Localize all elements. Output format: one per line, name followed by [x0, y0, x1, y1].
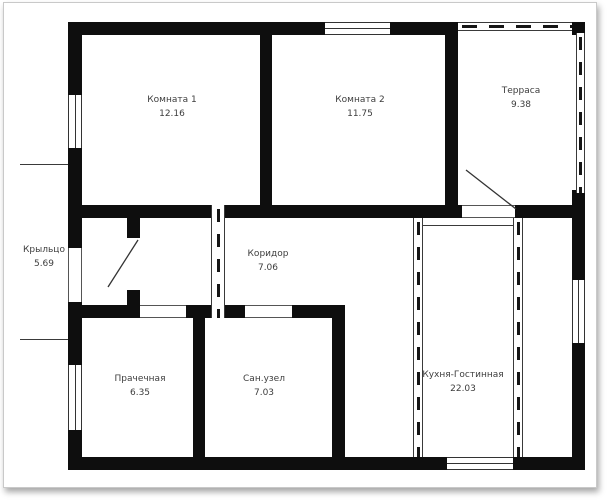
door-sanuzel — [245, 305, 292, 318]
room-label-san-uzel: Сан.узел 7.03 — [243, 372, 285, 400]
room-name: Сан.узел — [243, 372, 285, 386]
room-area: 9.38 — [502, 98, 540, 112]
door-terrace-opening — [462, 205, 515, 218]
room-area: 6.35 — [115, 386, 166, 400]
wall-lower-a — [82, 305, 140, 318]
window-kitchen-right — [572, 280, 585, 343]
wall-terrace-bottom-right — [515, 205, 572, 218]
porch-line-bottom — [20, 339, 68, 340]
room-name: Прачечная — [115, 372, 166, 386]
room-area: 7.06 — [248, 261, 289, 275]
room-label-koridor: Коридор 7.06 — [248, 247, 289, 275]
frame-wall-kitchen-2 — [513, 218, 523, 457]
room-name: Кухня-Гостинная — [422, 368, 503, 382]
window-laundry-left — [68, 365, 82, 430]
room-label-komnata-2: Комната 2 11.75 — [335, 93, 384, 121]
room-name: Терраса — [502, 84, 540, 98]
wall-hall-closet-top — [127, 218, 140, 238]
photo-frame — [3, 2, 597, 488]
wall-room2-terrace — [445, 22, 458, 218]
room-area: 7.03 — [243, 386, 285, 400]
room-label-prachechnaya: Прачечная 6.35 — [115, 372, 166, 400]
room-name: Комната 2 — [335, 93, 384, 107]
room-name: Коридор — [248, 247, 289, 261]
floor-plan-canvas: Комната 1 12.16 Комната 2 11.75 Терраса … — [0, 0, 610, 502]
window-kitchen-bottom — [447, 457, 513, 470]
window-room2-top — [325, 22, 390, 35]
room-label-komnata-1: Комната 1 12.16 — [147, 93, 196, 121]
wall-top — [68, 22, 458, 35]
room-area: 11.75 — [335, 107, 384, 121]
wall-mid-right — [225, 205, 445, 218]
room-area: 5.69 — [23, 257, 65, 271]
room-area: 12.16 — [147, 107, 196, 121]
room-label-terrasa: Терраса 9.38 — [502, 84, 540, 112]
frame-wall-hall-corridor — [211, 205, 225, 318]
terrace-railing-right — [576, 33, 585, 193]
wall-laundry-sanuzel — [193, 318, 205, 457]
wall-room1-room2 — [260, 35, 272, 218]
wall-sanuzel-kitchen — [332, 305, 345, 457]
porch-line-top — [20, 164, 68, 165]
window-room1-left — [68, 95, 82, 148]
room-label-kuhnya-gostinaya: Кухня-Гостинная 22.03 — [422, 368, 503, 396]
terrace-railing-top — [458, 22, 572, 31]
wall-mid-left — [82, 205, 211, 218]
room-label-kryltso: Крыльцо 5.69 — [23, 243, 65, 271]
frame-wall-kitchen-1 — [413, 218, 423, 457]
room-area: 22.03 — [422, 382, 503, 396]
opening-corridor-kitchen — [423, 218, 513, 226]
room-name: Крыльцо — [23, 243, 65, 257]
door-laundry — [140, 305, 186, 318]
door-entrance — [68, 248, 82, 302]
room-name: Комната 1 — [147, 93, 196, 107]
